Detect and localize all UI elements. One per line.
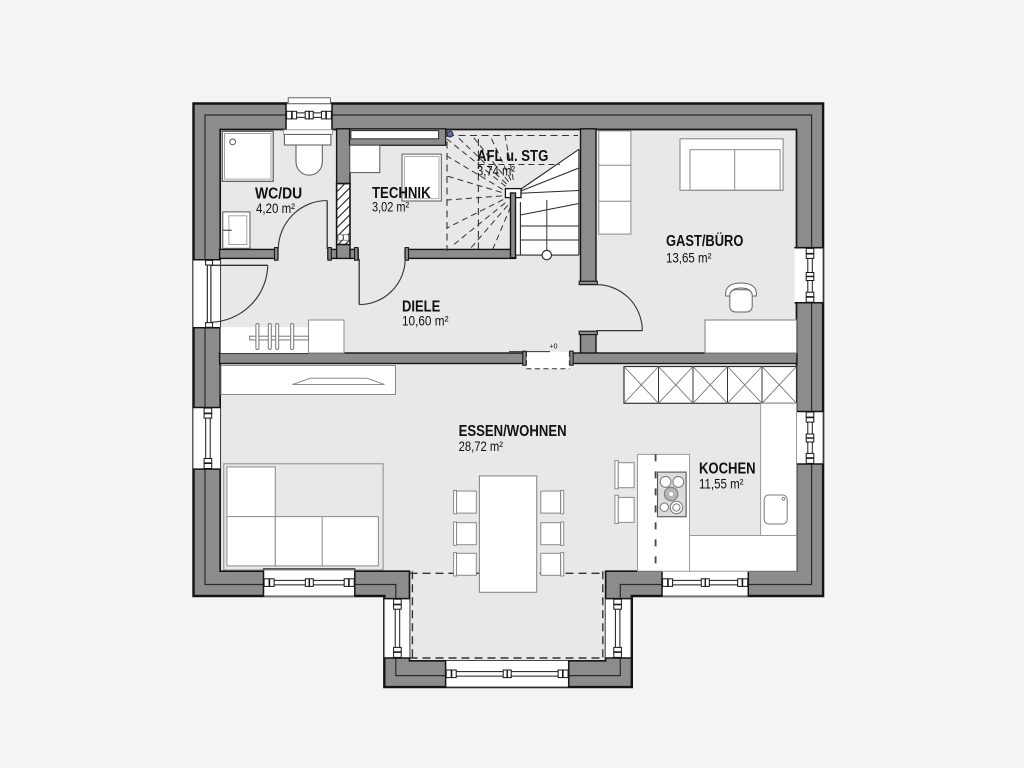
- svg-text:4,20 m²: 4,20 m²: [256, 201, 295, 216]
- svg-text:KOCHEN: KOCHEN: [699, 460, 756, 477]
- svg-text:3,74 m²: 3,74 m²: [477, 164, 516, 179]
- svg-text:AFL u. STG: AFL u. STG: [477, 148, 548, 165]
- svg-text:10,60 m²: 10,60 m²: [402, 314, 449, 329]
- svg-text:28,72 m²: 28,72 m²: [459, 439, 504, 454]
- svg-text:3,02 m²: 3,02 m²: [372, 200, 409, 215]
- svg-text:GAST/BÜRO: GAST/BÜRO: [666, 231, 743, 250]
- svg-text:11,55 m²: 11,55 m²: [699, 477, 744, 492]
- svg-text:13,65 m²: 13,65 m²: [666, 251, 712, 266]
- svg-text:ESSEN/WOHNEN: ESSEN/WOHNEN: [459, 423, 567, 440]
- svg-text:+0: +0: [550, 344, 558, 351]
